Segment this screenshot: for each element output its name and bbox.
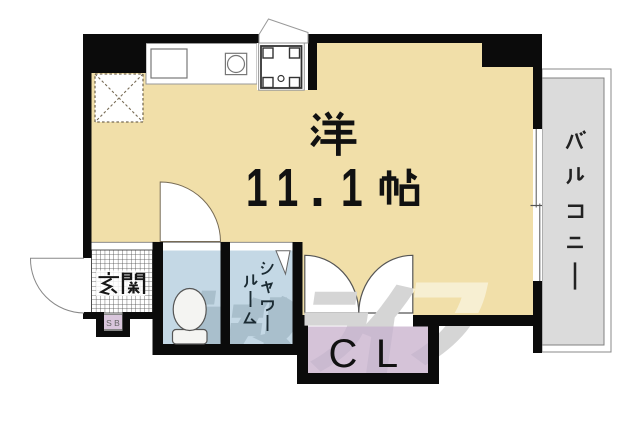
- svg-text:C: C: [329, 332, 358, 376]
- svg-text:L: L: [376, 332, 398, 376]
- svg-text:1: 1: [341, 157, 363, 218]
- svg-text:S B: S B: [106, 318, 120, 328]
- svg-text:.: .: [310, 158, 325, 218]
- svg-text:11: 11: [246, 157, 309, 218]
